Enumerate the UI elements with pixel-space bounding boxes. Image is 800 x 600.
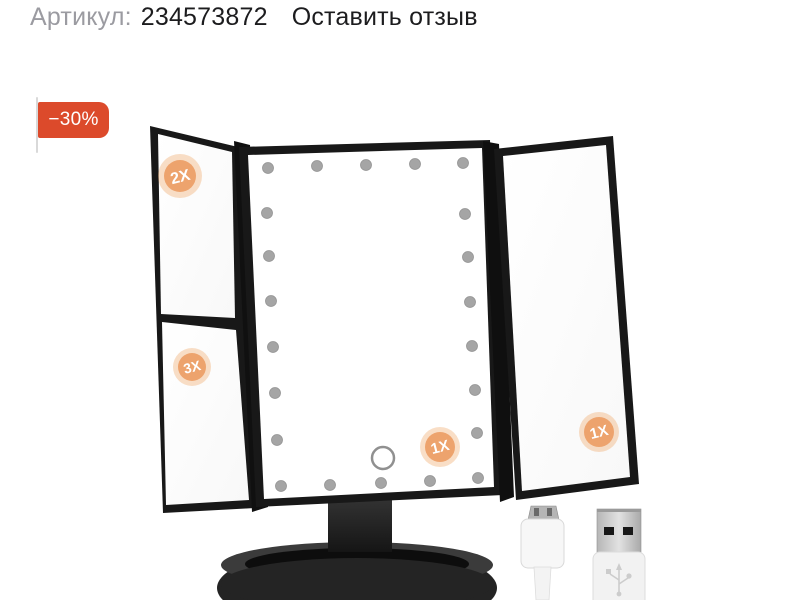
led-dot	[264, 251, 275, 262]
led-dot	[470, 385, 481, 396]
led-dot	[263, 163, 274, 174]
discount-badge: −30%	[38, 102, 109, 138]
led-dot	[270, 388, 281, 399]
led-dot	[312, 161, 323, 172]
article-number: 234573872	[141, 3, 268, 32]
led-dot	[425, 476, 436, 487]
stand-stem	[328, 498, 392, 552]
led-dot	[361, 160, 372, 171]
usb-a-icon	[593, 509, 645, 600]
left-panel-mirror-bottom	[162, 322, 249, 505]
led-dot	[410, 159, 421, 170]
led-dot	[463, 252, 474, 263]
led-dot	[472, 428, 483, 439]
magnification-badge-3x: 3X	[173, 348, 211, 386]
mirror-stand	[217, 498, 497, 600]
magnification-badge-1x-right: 1X	[579, 412, 619, 452]
led-dot	[276, 481, 287, 492]
led-dot	[266, 296, 277, 307]
led-dot	[467, 341, 478, 352]
led-dot	[272, 435, 283, 446]
led-dot	[473, 473, 484, 484]
led-dot	[376, 478, 387, 489]
magnification-badge-2x: 2X	[158, 154, 202, 198]
touch-sensor-button	[372, 447, 394, 469]
leave-review-link[interactable]: Оставить отзыв	[292, 3, 478, 32]
led-dot	[460, 209, 471, 220]
micro-usb-icon	[521, 506, 564, 600]
center-panel: 1X	[239, 140, 503, 507]
trifold-mirror-illustration: 2X 3X	[0, 0, 800, 600]
product-meta-bar: Артикул: 234573872 Оставить отзыв	[30, 2, 478, 32]
magnification-badge-1x-center: 1X	[420, 427, 460, 467]
led-dot	[325, 480, 336, 491]
led-dot	[268, 342, 279, 353]
right-panel: 1X	[494, 136, 639, 500]
led-dot	[262, 208, 273, 219]
article-label: Артикул:	[30, 3, 132, 32]
led-dot	[465, 297, 476, 308]
led-dot	[458, 158, 469, 169]
product-image[interactable]: 2X 3X	[0, 0, 800, 600]
